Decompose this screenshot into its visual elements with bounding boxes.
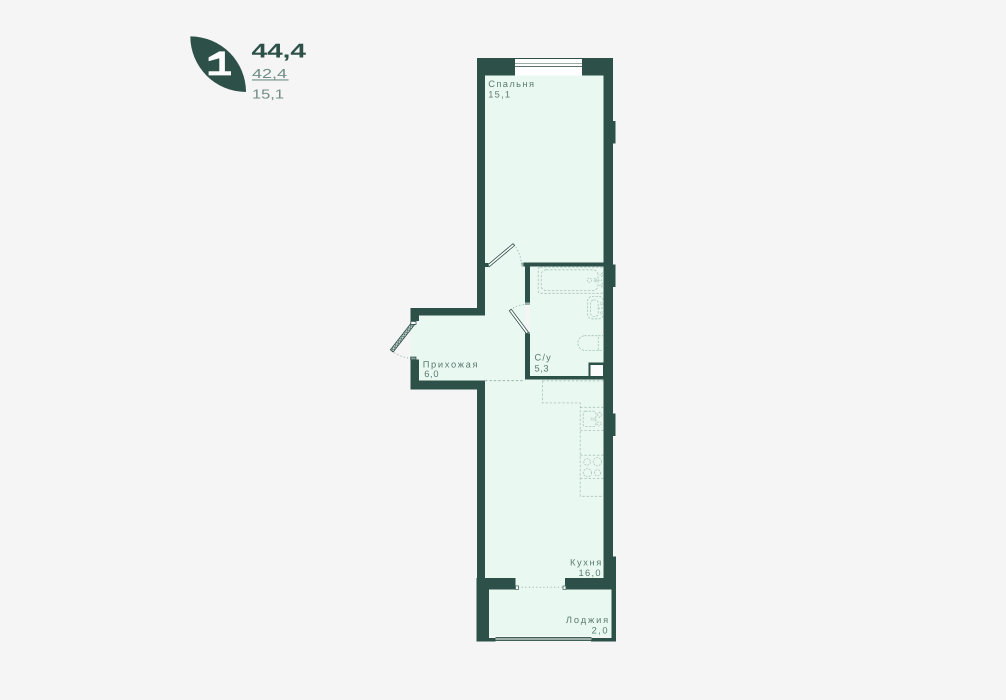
svg-text:Прихожая: Прихожая — [423, 359, 478, 369]
svg-text:16,0: 16,0 — [579, 568, 601, 578]
svg-text:6,0: 6,0 — [424, 369, 438, 379]
svg-text:15,1: 15,1 — [252, 87, 284, 102]
svg-text:Кухня: Кухня — [570, 558, 601, 568]
svg-text:15,1: 15,1 — [488, 90, 510, 100]
svg-text:5,3: 5,3 — [535, 363, 549, 373]
svg-text:С/у: С/у — [535, 353, 552, 363]
svg-text:44,4: 44,4 — [252, 41, 308, 63]
svg-text:42,4: 42,4 — [252, 66, 287, 81]
svg-text:2,0: 2,0 — [592, 626, 608, 636]
